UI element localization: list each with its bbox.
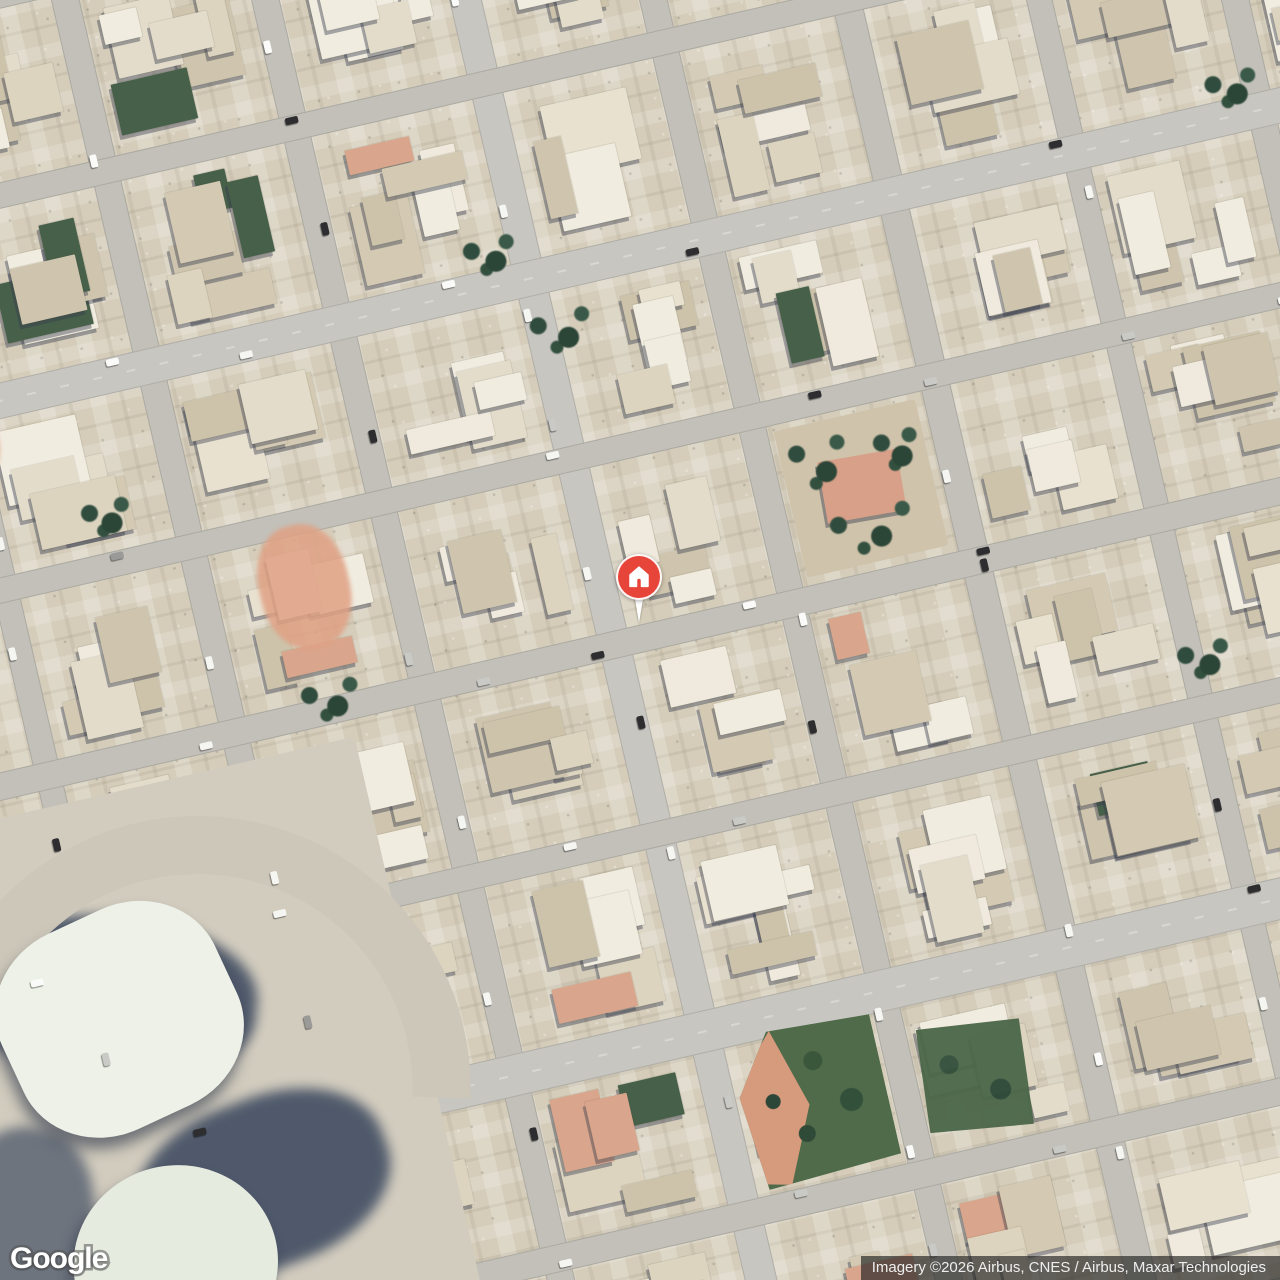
satellite-map-canvas[interactable]: Google Google Imagery ©2026 Airbus, CNES…	[0, 0, 1280, 1280]
map-imagery-layer	[0, 0, 1280, 1280]
google-logo-text: Google	[10, 1242, 107, 1276]
cars-layer	[0, 0, 1280, 1280]
attribution-bar: Imagery ©2026 Airbus, CNES / Airbus, Max…	[861, 1256, 1280, 1280]
home-icon	[626, 564, 652, 590]
marker-pin	[616, 554, 662, 600]
attribution-text: Imagery ©2026 Airbus, CNES / Airbus, Max…	[872, 1259, 1266, 1276]
